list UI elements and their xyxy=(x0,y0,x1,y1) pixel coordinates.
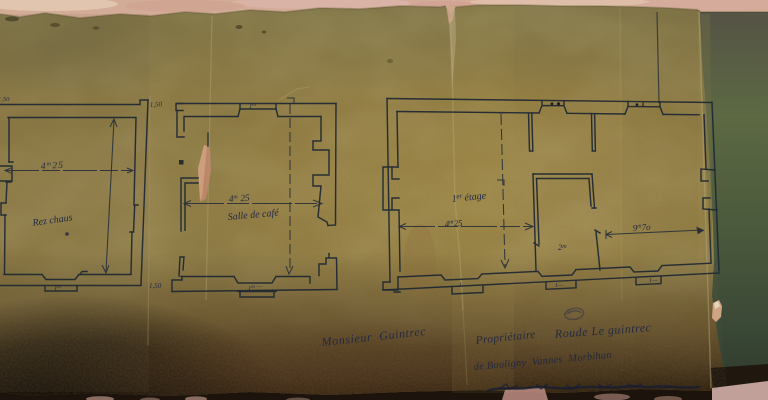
svg-text:4m25: 4m25 xyxy=(41,161,65,172)
svg-text:1—: 1— xyxy=(649,278,658,284)
svg-text:1—: 1— xyxy=(555,283,564,289)
svg-text:4m 25: 4m 25 xyxy=(229,194,251,205)
svg-text:1,50: 1,50 xyxy=(150,100,163,109)
svg-text:4m25: 4m25 xyxy=(444,218,463,229)
svg-text:1,50: 1,50 xyxy=(0,96,10,103)
svg-text:1—: 1— xyxy=(459,283,468,289)
svg-text:9m7o: 9m7o xyxy=(632,222,651,233)
svg-text:1,50: 1,50 xyxy=(149,282,162,290)
